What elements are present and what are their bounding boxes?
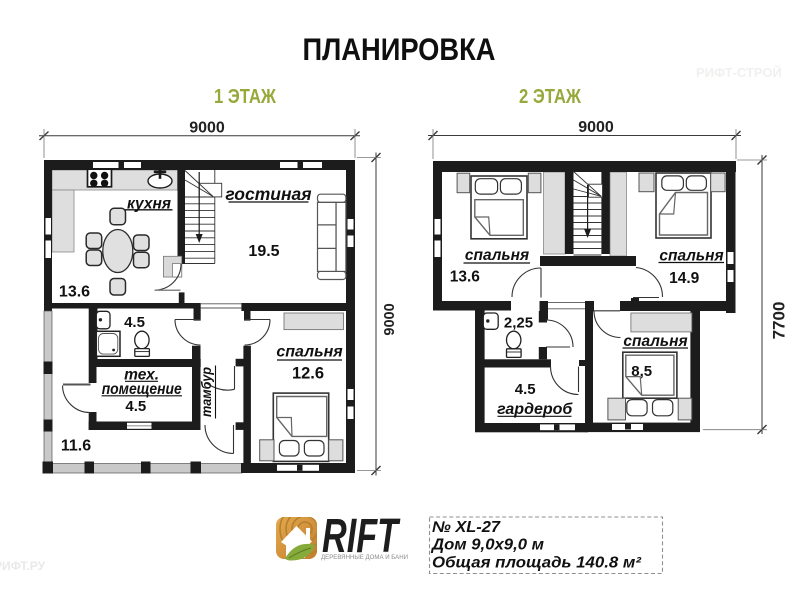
svg-text:14.9: 14.9 [669, 270, 700, 287]
svg-text:7700: 7700 [770, 302, 789, 340]
svg-text:спальня: спальня [276, 344, 343, 361]
svg-text:13.6: 13.6 [59, 284, 90, 301]
svg-text:11.6: 11.6 [61, 438, 91, 455]
svg-text:2,25: 2,25 [504, 315, 533, 332]
svg-text:Дом 9,0х9,0 м: Дом 9,0х9,0 м [430, 537, 545, 554]
svg-text:9000: 9000 [578, 119, 614, 136]
svg-text:гостиная: гостиная [225, 184, 311, 204]
svg-text:ДЕРЕВЯННЫЕ ДОМА И БАНИ: ДЕРЕВЯННЫЕ ДОМА И БАНИ [321, 554, 408, 561]
svg-text:12.6: 12.6 [292, 365, 324, 383]
svg-text:4.5: 4.5 [125, 398, 146, 415]
svg-text:№ XL-27: № XL-27 [432, 519, 501, 536]
svg-text:9000: 9000 [189, 120, 225, 137]
svg-text:4.5: 4.5 [515, 381, 536, 398]
svg-text:1 ЭТАЖ: 1 ЭТАЖ [214, 86, 277, 108]
svg-text:гардероб: гардероб [497, 401, 573, 418]
svg-text:9000: 9000 [382, 303, 398, 335]
svg-text:19.5: 19.5 [248, 243, 279, 260]
svg-text:4.5: 4.5 [124, 314, 145, 331]
svg-text:Общая площадь 140.8 м²: Общая площадь 140.8 м² [432, 555, 642, 572]
svg-text:РИФТ.РУ: РИФТ.РУ [0, 559, 46, 573]
svg-text:тамбур: тамбур [199, 367, 214, 417]
svg-text:спальня: спальня [465, 247, 529, 264]
svg-text:ПЛАНИРОВКА: ПЛАНИРОВКА [303, 31, 496, 67]
svg-text:13.6: 13.6 [450, 269, 481, 286]
svg-text:2 ЭТАЖ: 2 ЭТАЖ [519, 86, 582, 108]
svg-text:8,5: 8,5 [631, 363, 652, 380]
svg-text:РИФТ-СТРОЙ: РИФТ-СТРОЙ [696, 65, 782, 80]
